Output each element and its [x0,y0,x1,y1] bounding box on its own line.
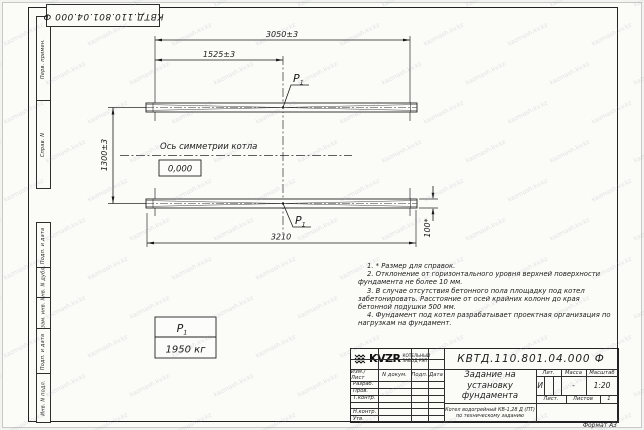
level-mark-text: 0,000 [168,165,192,175]
note-item: 3. В случае отсутствия бетонного пола пл… [358,287,614,312]
sheets-value: 1 [600,395,618,403]
notes-block: 1. * Размер для справок. 2. Отклонение о… [358,262,614,328]
note-item: 4. Фундамент под котел разрабатывает про… [358,311,614,327]
mass-value: - [561,376,586,395]
title-block: КВТД.110.801.04.000 Ф Изм./Лист N докум.… [350,348,619,423]
col-header-n-dokum: N докум. [378,369,411,381]
margin-label: Подп. и дата [41,333,47,369]
margin-label: Инв. N дубл. [41,265,47,300]
row-label-razrab: Разраб. [353,381,373,388]
lit-header: Лит. [536,369,561,376]
load-sub: 1 [302,221,306,229]
document-subtitle: Котел водогрейный КВ-1,28 Д (ПТ) по техн… [444,403,536,422]
note-item: 1. * Размер для справок. [358,262,614,270]
designation-cell: КВТД.110.801.04.000 Ф [444,349,618,369]
dim-1525: 1525±3 [155,50,283,61]
dim-3210: 3210 [147,233,416,245]
svg-text:P1: P1 [293,72,304,87]
row-label-nkontr: Н.контр. [353,408,376,415]
dim-1300-text: 1300±3 [100,139,109,171]
bottom-beam [146,199,417,208]
col-header-izm-list: Изм./Лист [351,369,378,381]
scale-value: 1:20 [586,376,618,395]
dim-3050-text: 3050±3 [266,30,298,39]
row-label-utv: Утв. [353,415,364,422]
dim-100: 100* [423,186,434,238]
margin-box-podp-data-2: Подп. и дата [36,328,51,375]
stamp-designation-text: КВТД.110.801.04.000 Ф [43,11,164,21]
margin-label: Справ. N [41,132,47,156]
load-value-text: 1950 кг [166,345,207,356]
margin-label: Инв. N подл. [41,380,47,415]
subtitle-line: по техническому заданию [445,413,535,419]
top-designation-stamp: КВТД.110.801.04.000 Ф [46,4,160,27]
level-mark-box: 0,000 [159,160,201,176]
dim-100-text: 100* [423,218,432,237]
row-label-prov: Пров. [353,388,368,395]
col-header-data: Дата [428,369,444,381]
symmetry-axis-label: Ось симметрии котла [160,142,257,152]
svg-text:P1: P1 [295,214,306,229]
margin-box-vzam-inv: Взам. инв. N [36,297,51,330]
document-title: Задание на установку фундамента [444,369,536,403]
load-sub: 1 [183,329,187,337]
load-table: P1 1950 кг [155,317,216,358]
margin-box-podp-data-1: Подп. и дата [36,222,51,269]
sheets-label: Листов [566,395,600,403]
top-beam [146,103,417,112]
dim-1300: 1300±3 [100,108,114,204]
margin-label: Перв. примен. [41,39,47,79]
margin-label: Взам. инв. N [41,296,47,331]
title-line: Задание на [462,370,518,381]
margin-label: Подп. и дата [41,227,47,263]
extension-lines [108,36,438,247]
lit-value: И [536,376,544,395]
drawing-sheet: { "watermark": "kazmash.kv.kz", "stamp_t… [0,0,644,430]
dim-1525-text: 1525±3 [203,50,235,59]
col-header-podp: Подп. [411,369,428,381]
note-item: 2. Отклонение от горизонтального уровня … [358,270,614,286]
mass-header: Масса [561,369,586,376]
subtitle-line: Котел водогрейный КВ-1,28 Д (ПТ) [445,407,535,413]
row-label-tkontr: Т.контр. [353,395,375,402]
margin-box-inv-dubl: Инв. N дубл. [36,267,51,299]
title-line: установку [462,381,518,392]
sheet-label: Лист. [536,395,566,403]
dim-3210-text: 3210 [271,233,291,242]
dim-3050: 3050±3 [155,30,410,41]
scale-header: Масштаб [586,369,618,376]
format-label: Формат А3 [545,422,617,429]
title-line: фундамента [462,391,518,402]
load-sub: 1 [300,79,304,87]
margin-box-inv-podl: Инв. N подл. [36,373,51,423]
margin-box-perv-primen: Перв. примен. [36,16,51,102]
margin-box-sprav-n: Справ. N [36,100,51,189]
